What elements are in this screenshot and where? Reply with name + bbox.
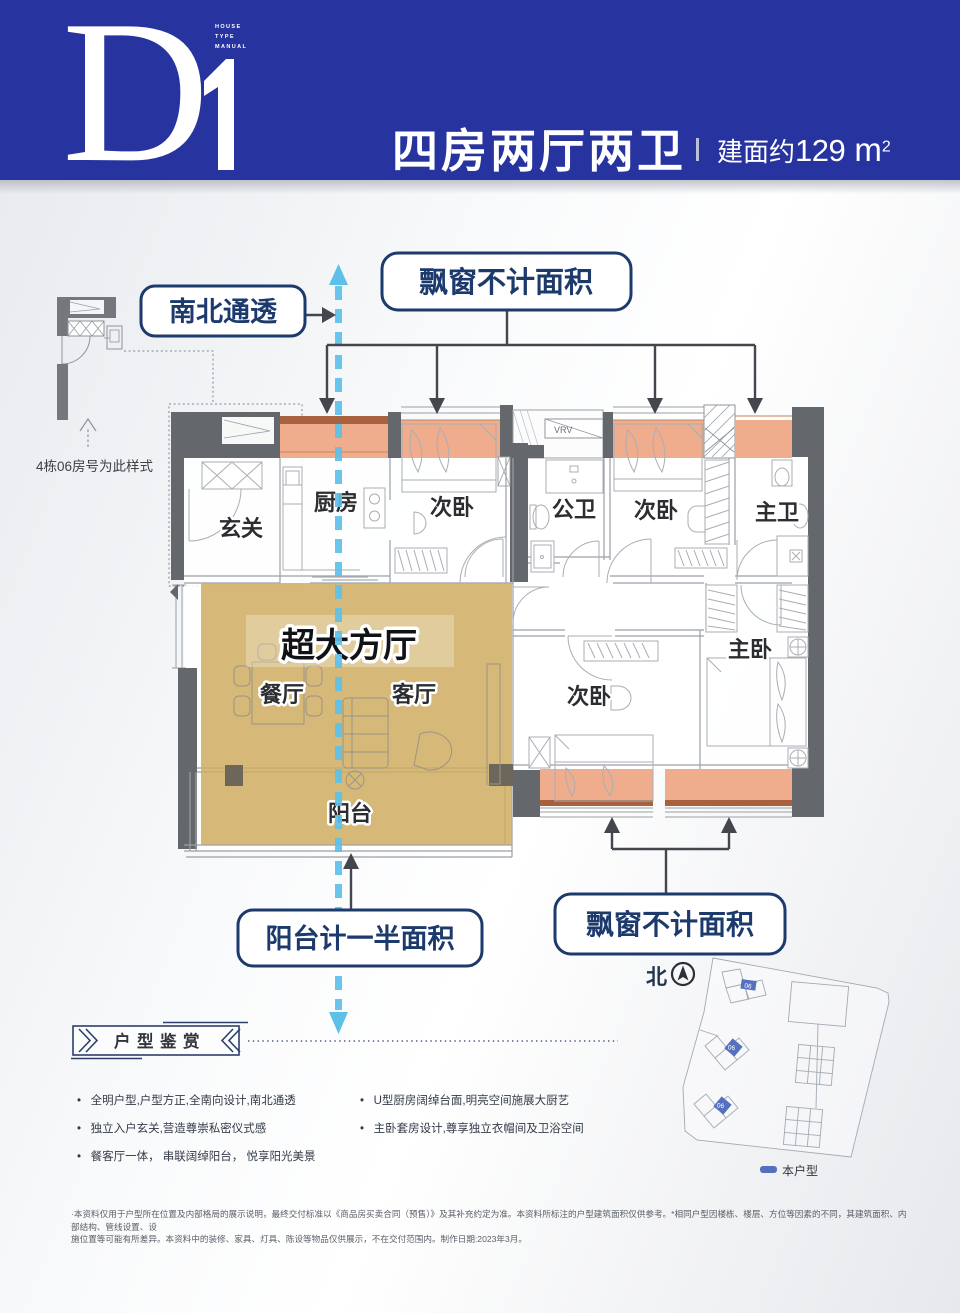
svg-text:主卫: 主卫 — [755, 500, 799, 525]
svg-text:玄关: 玄关 — [219, 516, 263, 541]
svg-text:北: 北 — [646, 966, 667, 989]
svg-text:06: 06 — [727, 1044, 736, 1052]
svg-text:南北通透: 南北通透 — [169, 297, 277, 327]
svg-text:飘窗不计面积: 飘窗不计面积 — [419, 265, 593, 299]
svg-text:次卧: 次卧 — [567, 684, 611, 709]
svg-text:本户型: 本户型 — [782, 1163, 818, 1178]
svg-text:飘窗不计面积: 飘窗不计面积 — [586, 908, 754, 940]
svg-text:户型鉴赏: 户型鉴赏 — [114, 1031, 206, 1051]
svg-text:阳台计一半面积: 阳台计一半面积 — [266, 923, 455, 954]
svg-text:餐厅: 餐厅 — [260, 682, 304, 707]
svg-text:次卧: 次卧 — [634, 498, 678, 523]
svg-text:4栋06房号为此样式: 4栋06房号为此样式 — [36, 459, 154, 474]
svg-text:公卫: 公卫 — [552, 497, 596, 522]
svg-text:次卧: 次卧 — [430, 495, 474, 520]
svg-text:客厅: 客厅 — [392, 682, 436, 707]
svg-text:06: 06 — [716, 1102, 725, 1110]
svg-text:主卧: 主卧 — [728, 637, 772, 662]
svg-text:06: 06 — [744, 983, 753, 991]
svg-text:超大方厅: 超大方厅 — [281, 627, 417, 665]
svg-text:阳台: 阳台 — [328, 801, 372, 826]
svg-text:VRV: VRV — [554, 425, 572, 435]
